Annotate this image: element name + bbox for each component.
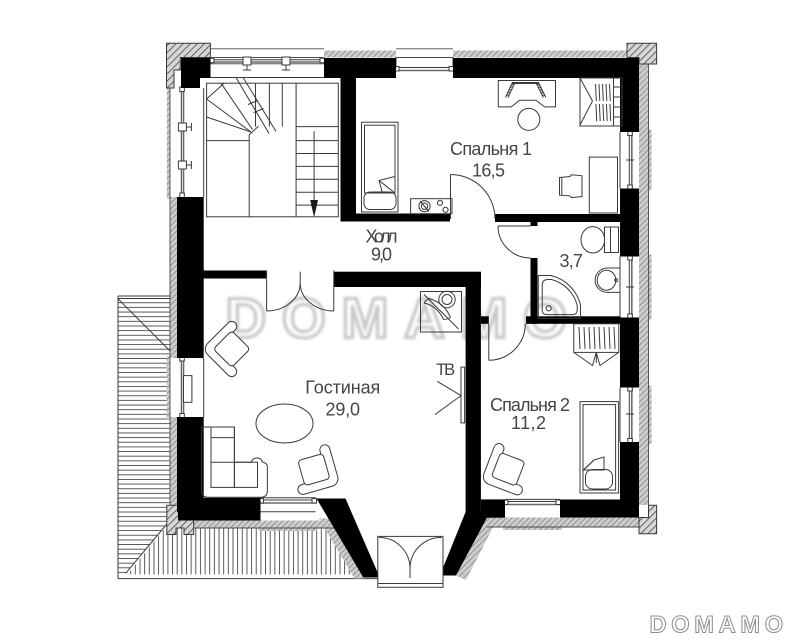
svg-text:Гостиная: Гостиная [305, 377, 380, 397]
svg-text:11,2: 11,2 [511, 413, 546, 433]
svg-text:DOMAMO: DOMAMO [650, 613, 788, 639]
svg-text:Холл: Холл [366, 227, 398, 247]
svg-text:29,0: 29,0 [326, 400, 361, 420]
svg-text:Спальня 2: Спальня 2 [490, 395, 570, 415]
svg-text:16,5: 16,5 [472, 161, 505, 181]
svg-text:ТВ: ТВ [436, 361, 455, 379]
svg-text:Спальня 1: Спальня 1 [450, 139, 532, 159]
svg-text:9,0: 9,0 [371, 245, 392, 265]
svg-text:3,7: 3,7 [559, 251, 583, 271]
